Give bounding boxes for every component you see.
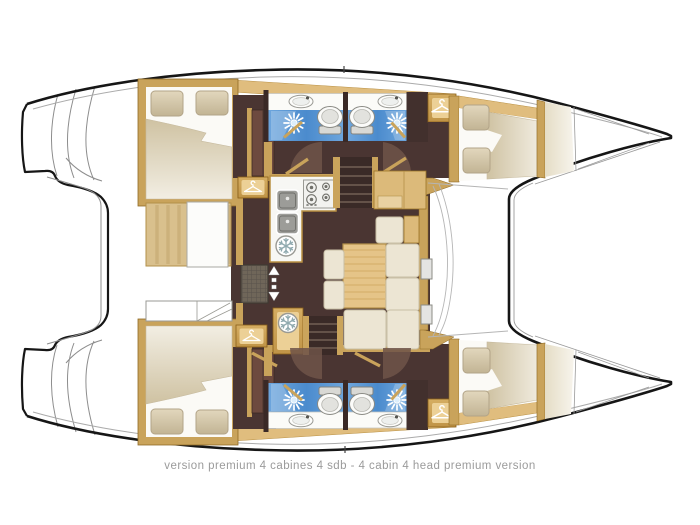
head-wall bbox=[407, 92, 429, 142]
toilet bbox=[318, 107, 343, 135]
cockpit-table bbox=[187, 202, 228, 267]
cabin-wall bbox=[449, 339, 459, 425]
catamaran-floor-plan bbox=[0, 0, 700, 525]
pillow bbox=[196, 91, 228, 115]
stern-platform-outline bbox=[22, 104, 108, 416]
head-wall bbox=[343, 92, 348, 142]
pillow bbox=[463, 148, 490, 173]
front-door-hinge bbox=[421, 259, 432, 279]
washbasin bbox=[378, 95, 402, 108]
sideboard-panel bbox=[378, 196, 402, 208]
companionway-stairs-port bbox=[333, 157, 378, 208]
pillow bbox=[463, 391, 489, 416]
port-forward-cabin bbox=[449, 96, 574, 182]
floor-plan-page: version premium 4 cabines 4 sdb - 4 cabi… bbox=[0, 0, 700, 525]
head-wall bbox=[264, 90, 269, 142]
transom-steps-port bbox=[51, 86, 102, 181]
settee-stool bbox=[324, 281, 344, 309]
wardrobe-side-dark bbox=[428, 122, 452, 178]
front-door-hinge bbox=[421, 305, 432, 324]
pillow bbox=[196, 410, 228, 434]
cockpit-locker bbox=[146, 301, 232, 321]
head-wall bbox=[407, 380, 429, 430]
pillow bbox=[463, 105, 489, 130]
fridge-unit-starboard bbox=[273, 308, 303, 354]
wardrobe-side-dark bbox=[428, 344, 452, 399]
forepeak-shelf bbox=[545, 344, 574, 419]
wardrobe-inner bbox=[242, 180, 265, 195]
transom-steps-starboard bbox=[51, 340, 102, 435]
dinette-table bbox=[343, 244, 386, 308]
starboard-aft-cabin bbox=[138, 319, 238, 445]
stair-rail bbox=[337, 316, 343, 355]
settee-cushion bbox=[344, 310, 386, 349]
port-aft-cabin bbox=[138, 79, 238, 206]
plan-caption: version premium 4 cabines 4 sdb - 4 cabi… bbox=[0, 460, 700, 472]
washbasin bbox=[289, 95, 313, 108]
forepeak-shelf bbox=[545, 102, 574, 177]
side-cabinet bbox=[404, 216, 419, 243]
settee-cushion bbox=[386, 244, 419, 277]
settee-cushion bbox=[387, 310, 419, 349]
cabin-wall bbox=[537, 100, 545, 178]
starboard-forward-cabin bbox=[449, 339, 574, 425]
head-wall bbox=[264, 380, 269, 432]
settee-cushion bbox=[376, 217, 403, 243]
aft-wall bbox=[236, 303, 243, 326]
aft-wall bbox=[236, 198, 243, 265]
toilet bbox=[318, 387, 343, 415]
stair-treads bbox=[340, 157, 372, 208]
entry-mat-grid bbox=[242, 266, 267, 302]
fwd-bulkhead-strip bbox=[264, 142, 272, 176]
stair-rail bbox=[333, 157, 340, 208]
settee-stool bbox=[324, 250, 344, 279]
washbasin bbox=[289, 414, 313, 427]
pillow bbox=[151, 91, 183, 116]
galley-sink bbox=[277, 213, 299, 234]
pillow bbox=[151, 409, 183, 434]
hanging-locker-aft-port bbox=[238, 177, 268, 198]
toilet bbox=[350, 107, 375, 135]
stern-platform-inner-line bbox=[47, 177, 101, 344]
port-heads bbox=[264, 90, 429, 142]
toilet bbox=[350, 387, 375, 415]
coachroof-curves bbox=[428, 183, 508, 337]
starboard-heads bbox=[264, 380, 429, 432]
corridor-wall bbox=[247, 347, 252, 417]
corridor-wall bbox=[247, 108, 252, 178]
cabin-wall bbox=[449, 96, 459, 182]
hanging-locker-aft-starboard bbox=[236, 325, 267, 347]
head-wall bbox=[343, 380, 348, 430]
pillow bbox=[463, 348, 490, 373]
settee-cushion bbox=[386, 278, 419, 311]
galley-sink bbox=[277, 190, 299, 211]
cabin-wall bbox=[537, 343, 545, 421]
washbasin bbox=[378, 414, 402, 427]
